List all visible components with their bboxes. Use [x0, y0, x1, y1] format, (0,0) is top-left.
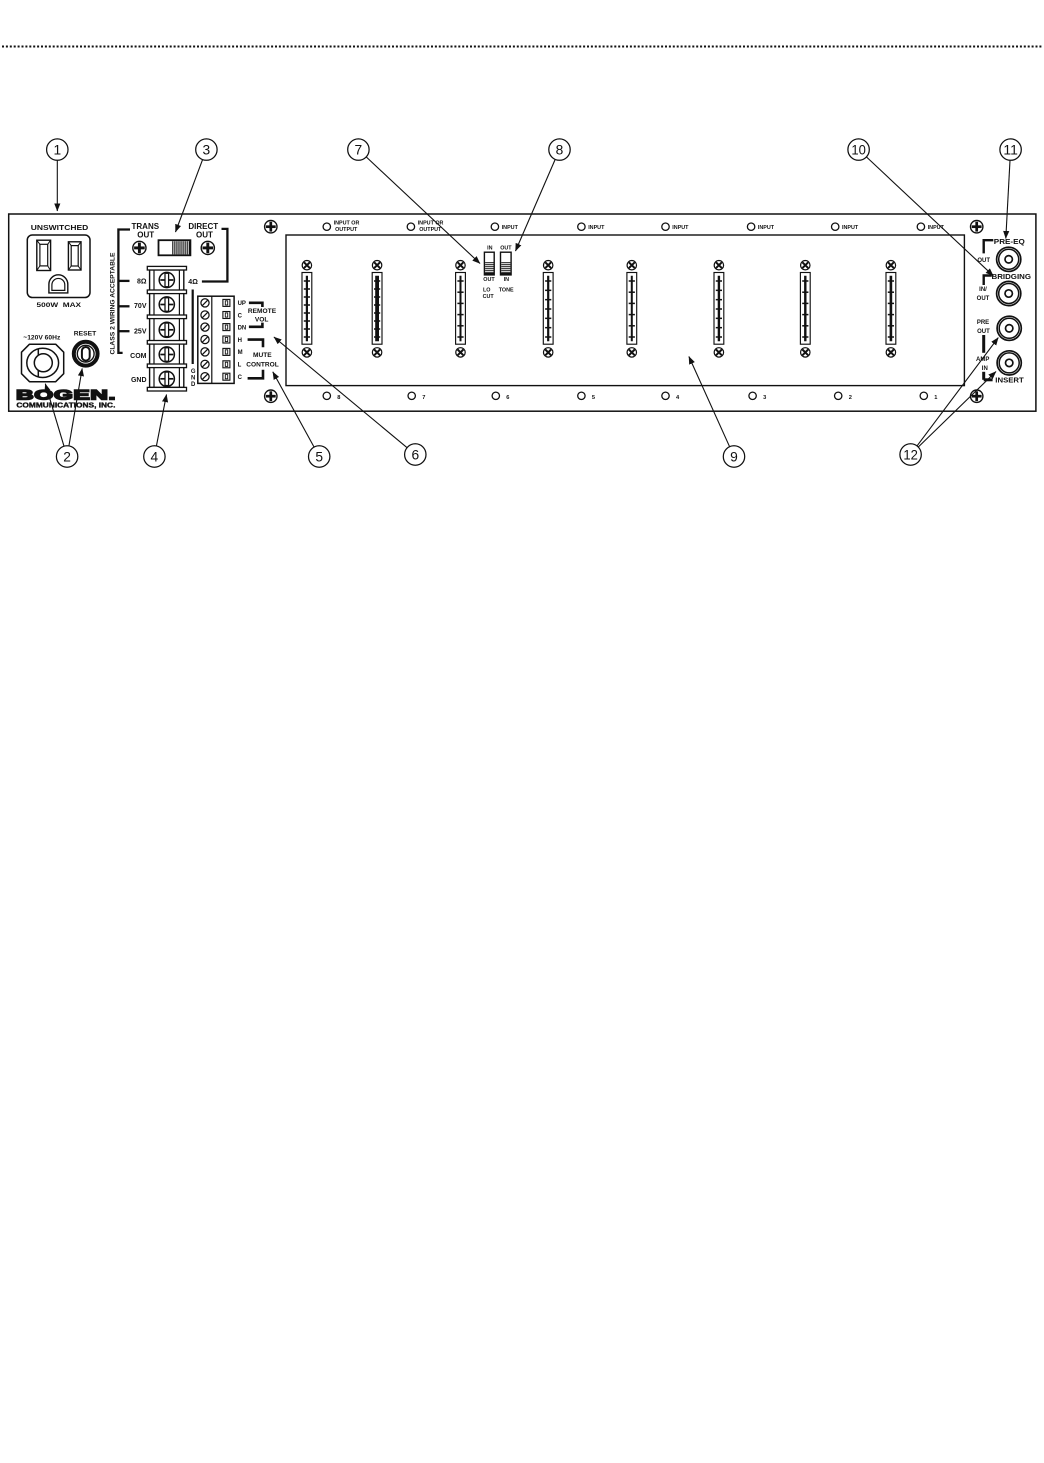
svg-text:RESET: RESET	[74, 330, 97, 337]
svg-text:5: 5	[315, 449, 323, 464]
svg-text:PRE: PRE	[977, 320, 989, 326]
svg-text:UP: UP	[238, 301, 246, 307]
svg-text:10: 10	[851, 143, 866, 158]
svg-text:G: G	[191, 369, 196, 375]
svg-text:4Ω: 4Ω	[188, 279, 198, 286]
svg-text:OUTPUT: OUTPUT	[419, 227, 442, 233]
svg-text:8: 8	[337, 395, 340, 401]
svg-text:7: 7	[355, 143, 363, 158]
svg-text:IN: IN	[982, 366, 988, 372]
svg-text:OUTPUT: OUTPUT	[335, 227, 358, 233]
svg-text:INPUT: INPUT	[502, 225, 519, 231]
svg-text:DN: DN	[238, 325, 247, 331]
svg-text:UNSWITCHED: UNSWITCHED	[31, 225, 89, 232]
svg-text:INPUT: INPUT	[672, 225, 689, 231]
svg-text:REMOTE: REMOTE	[248, 308, 277, 315]
svg-text:25V: 25V	[134, 328, 147, 335]
svg-text:6: 6	[411, 447, 419, 462]
svg-text:LO: LO	[483, 287, 491, 293]
svg-text:11: 11	[1003, 143, 1018, 158]
svg-text:4: 4	[151, 449, 159, 464]
svg-text:COM: COM	[130, 353, 147, 360]
svg-text:L: L	[238, 363, 242, 369]
svg-text:INSERT: INSERT	[995, 376, 1024, 385]
svg-text:~120V 60Hz: ~120V 60Hz	[23, 335, 60, 342]
svg-text:OUT: OUT	[137, 231, 154, 240]
svg-text:12: 12	[903, 447, 918, 462]
svg-text:1: 1	[53, 143, 61, 158]
svg-text:D: D	[191, 382, 196, 388]
svg-text:PRE-EQ: PRE-EQ	[994, 237, 1025, 246]
svg-text:IN: IN	[487, 246, 492, 252]
svg-text:N: N	[191, 376, 195, 382]
svg-text:INPUT OR: INPUT OR	[334, 221, 360, 227]
svg-text:INPUT: INPUT	[588, 225, 605, 231]
svg-text:BRIDGING: BRIDGING	[992, 272, 1032, 281]
svg-text:500W MAX: 500W MAX	[37, 302, 82, 309]
svg-text:OUT: OUT	[977, 296, 990, 302]
svg-text:MUTE: MUTE	[253, 352, 272, 359]
svg-text:2: 2	[849, 395, 852, 401]
svg-text:GND: GND	[131, 377, 147, 384]
svg-text:7: 7	[422, 395, 425, 401]
svg-text:3: 3	[763, 395, 766, 401]
svg-text:OUT: OUT	[483, 277, 495, 283]
svg-text:IN/: IN/	[979, 287, 987, 293]
svg-text:1: 1	[934, 395, 937, 401]
svg-text:9: 9	[730, 449, 738, 464]
svg-text:M: M	[238, 350, 243, 356]
svg-text:OUT: OUT	[977, 329, 990, 335]
svg-text:CLASS 2 WIRING ACCEPTABLE: CLASS 2 WIRING ACCEPTABLE	[109, 252, 116, 355]
svg-text:2: 2	[63, 449, 71, 464]
svg-text:8: 8	[556, 143, 564, 158]
svg-text:INPUT: INPUT	[758, 225, 775, 231]
svg-text:INPUT: INPUT	[842, 225, 859, 231]
svg-text:COMMUNICATIONS, INC.: COMMUNICATIONS, INC.	[16, 400, 115, 409]
svg-text:5: 5	[592, 395, 595, 401]
svg-text:6: 6	[506, 395, 509, 401]
svg-text:VOL: VOL	[255, 316, 269, 323]
svg-text:CUT: CUT	[483, 294, 495, 300]
svg-text:CONTROL: CONTROL	[246, 361, 279, 368]
svg-text:C: C	[238, 375, 243, 381]
svg-text:70V: 70V	[134, 303, 147, 310]
svg-text:IN: IN	[504, 277, 509, 283]
svg-text:H: H	[238, 338, 242, 344]
svg-text:C: C	[238, 313, 243, 319]
svg-text:8Ω: 8Ω	[137, 279, 147, 286]
svg-text:OUT: OUT	[500, 246, 512, 252]
svg-text:3: 3	[203, 143, 211, 158]
svg-text:TONE: TONE	[499, 287, 514, 293]
svg-text:OUT: OUT	[196, 231, 213, 240]
